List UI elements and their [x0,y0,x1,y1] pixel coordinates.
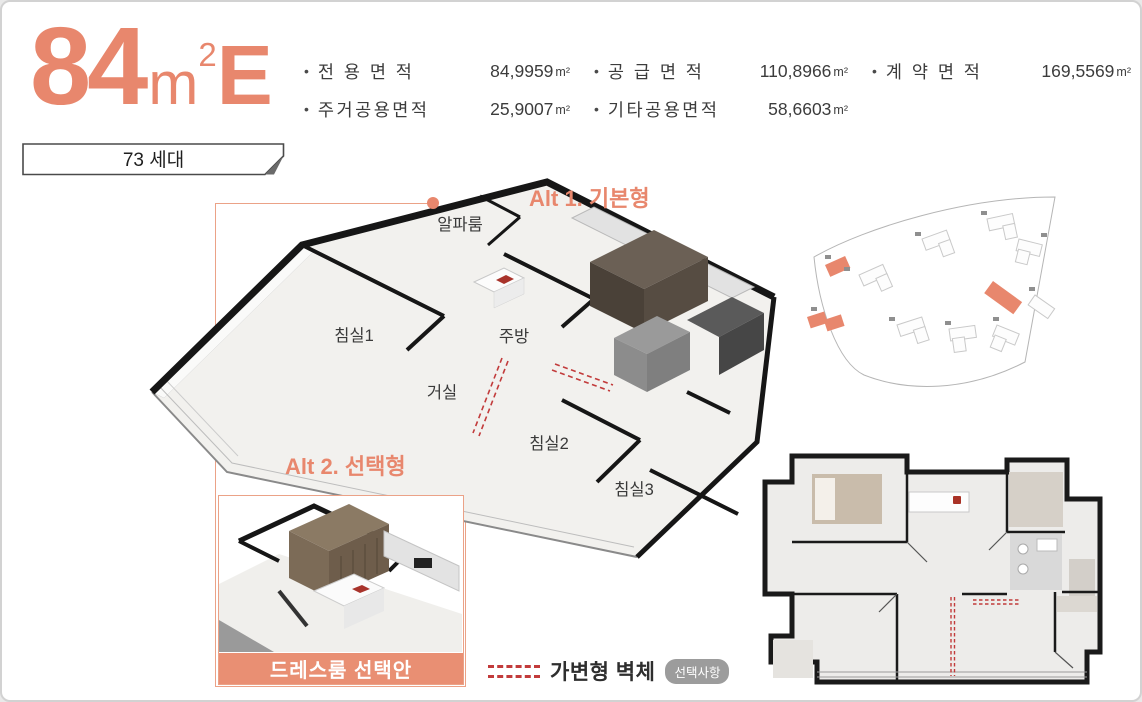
spec-value: 25,9007m² [454,99,570,120]
optional-badge: 선택사항 [665,659,729,684]
spec-value: 110,8966m² [738,61,848,82]
household-count-label: 73 세대 [22,143,285,173]
callout-dot [427,197,439,209]
utility-2d [1009,472,1063,527]
alt1-title: Alt 1. 기본형 [529,181,650,213]
spec-label: 기타공용면적 [570,97,738,122]
unit-size-m: m [148,50,198,117]
legend-label: 가변형 벽체 [550,656,655,686]
unit-size-sup2: 2 [198,36,216,73]
floorplan-2d [757,444,1107,696]
inset-caption-banner: 드레스룸 선택안 [219,653,463,684]
site-boundary [814,197,1055,386]
unit-type-title: 84m2E [30,12,273,122]
unit-size-number: 84 [30,5,144,128]
room-label-bed1: 침실1 [334,326,374,345]
room-label-bed2: 침실2 [529,434,569,453]
room-label-living: 거실 [427,383,457,402]
alt2-floorplan-3d [219,496,462,652]
spec-value: 169,5569m² [1016,61,1131,82]
spec-value: 58,6603m² [738,99,848,120]
site-plan [797,177,1107,397]
legend: 가변형 벽체 선택사항 [488,656,729,686]
room-label-kitchen: 주방 [499,327,529,346]
alt2-title: Alt 2. 선택형 [285,449,406,481]
movable-wall-dash-icon [488,664,540,679]
spec-label: 공 급 면 적 [570,59,738,84]
room-label-bed3: 침실3 [614,480,654,499]
spec-label: 전 용 면 적 [304,59,454,84]
spec-value: 84,9959m² [454,61,570,82]
spec-label: 주거공용면적 [304,97,454,122]
stove-2d [953,496,961,504]
inset-oven [414,558,432,568]
room-label-alpha: 알파룸 [437,215,483,234]
unit-size-letter: E [217,28,273,122]
balcony-2d [773,640,813,678]
spec-label: 계 약 면 적 [848,59,1016,84]
alt2-inset: 드레스룸 선택안 [218,495,464,685]
brochure-page: 84m2E 전 용 면 적 84,9959m² 공 급 면 적 110,8966… [0,0,1142,702]
area-spec-table: 전 용 면 적 84,9959m² 공 급 면 적 110,8966m² 계 약… [304,58,1131,123]
